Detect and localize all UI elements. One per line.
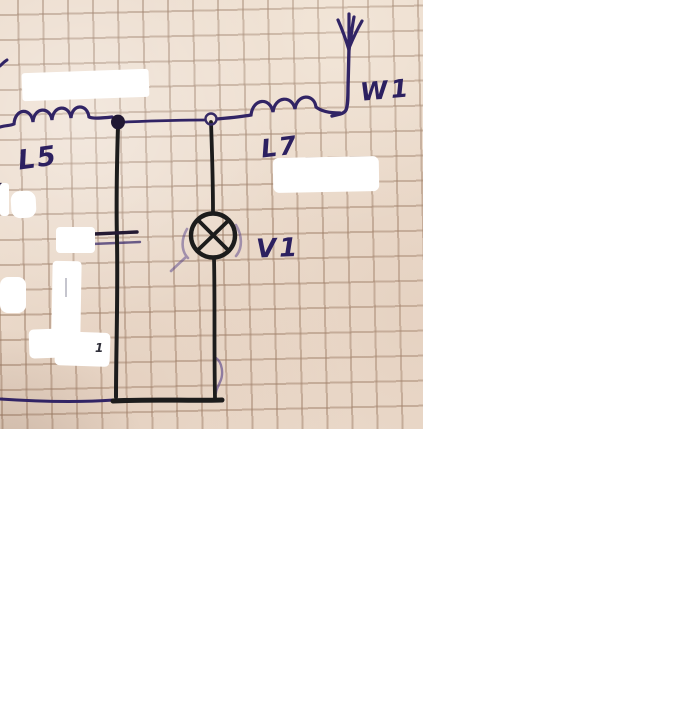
inductor-L7-label: L7	[259, 130, 300, 163]
whiteout-patch	[0, 277, 26, 313]
wire-bottom-return	[113, 400, 222, 401]
junction-dot	[111, 115, 125, 130]
whiteout-patch	[10, 190, 36, 218]
antenna-symbol	[332, 48, 349, 116]
wire-top-middle	[124, 120, 205, 122]
page: 1 L5 L7 V1 W1	[0, 0, 680, 705]
whiteout-patch	[273, 156, 380, 193]
circuit-drawing: 1 L5 L7 V1 W1	[0, 0, 423, 429]
whiteout-patch	[56, 227, 95, 253]
inductor-L5-label: L5	[16, 140, 60, 176]
schematic-photo: 1 L5 L7 V1 W1	[0, 0, 423, 429]
edge-stub-mark	[0, 60, 7, 66]
lamp-top-lead	[211, 122, 213, 213]
leftover-fragment: 1	[95, 341, 103, 355]
wire-left-vertical	[116, 126, 118, 397]
antenna-label: W1	[359, 73, 412, 106]
whiteout-patch	[51, 261, 81, 337]
whiteout-layer	[0, 69, 379, 367]
wire-bottom-left	[0, 399, 114, 402]
lamp-cross-icon	[197, 220, 229, 251]
black-ink-layer	[94, 122, 235, 401]
lamp-bottom-lead	[214, 258, 215, 398]
inductor-L7-symbol	[217, 97, 340, 119]
pen-loop-mark	[216, 358, 222, 393]
antenna-fork-icon	[338, 14, 362, 50]
inductor-L5-symbol	[0, 107, 112, 127]
whiteout-patch	[22, 69, 150, 101]
capacitor-upper-plate	[94, 232, 137, 234]
whiteout-patch	[0, 183, 9, 216]
lamp-label: V1	[256, 233, 301, 265]
